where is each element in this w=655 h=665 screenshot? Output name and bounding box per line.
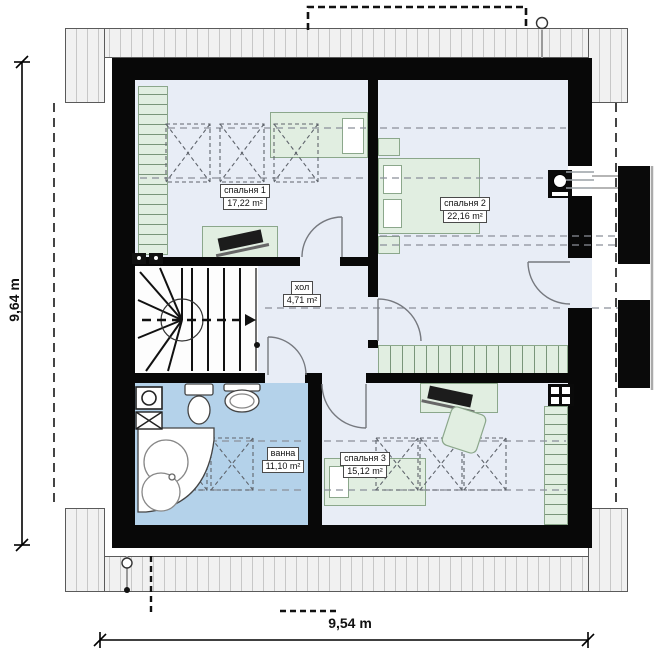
staircase-floor — [135, 266, 258, 373]
room-name: хол — [291, 281, 313, 295]
exterior-wall-top — [112, 58, 592, 80]
nightstand-bedroom2-top — [378, 138, 400, 156]
partition-corridor-bedroom3 — [366, 373, 592, 383]
room-area: 4,71 m² — [283, 294, 322, 308]
room-area: 15,12 m² — [343, 465, 387, 479]
floor-plan: спальня 1 17,22 m² спальня 2 22,16 m² хо… — [0, 0, 655, 665]
room-area: 17,22 m² — [223, 197, 267, 211]
balcony — [592, 166, 652, 390]
balcony-pier-bottom — [618, 300, 650, 388]
pillow-bedroom2-bottom — [383, 199, 402, 228]
desk-bedroom3 — [420, 383, 498, 413]
partition-bedroom1-bedroom2 — [368, 80, 378, 297]
room-label-hall: хол 4,71 m² — [272, 281, 332, 307]
roof-overhang-bottom-right — [588, 508, 628, 592]
roof-overhang-top-right — [588, 28, 628, 103]
room-label-bedroom1: спальня 1 17,22 m² — [205, 184, 285, 210]
pillow-bedroom1 — [342, 118, 364, 154]
room-area: 22,16 m² — [443, 210, 487, 224]
dimension-width-label: 9,54 m — [295, 615, 405, 631]
exterior-wall-right-lower — [568, 308, 592, 548]
room-name: ванна — [267, 447, 300, 461]
balcony-pier-top — [618, 166, 650, 264]
wardrobe-corridor — [378, 345, 568, 374]
roof-overhang-top-left — [65, 28, 105, 103]
room-name: спальня 3 — [340, 452, 390, 466]
pillow-bedroom2-top — [383, 165, 402, 194]
wardrobe-bedroom1 — [138, 86, 168, 255]
nightstand-bedroom2-bottom — [378, 236, 400, 254]
room-name: спальня 1 — [220, 184, 270, 198]
dimension-line-bottom — [94, 632, 594, 648]
partition-bedroom1-hall — [135, 257, 300, 266]
wardrobe-bedroom3 — [544, 406, 568, 525]
roof-overhang-bottom — [65, 556, 628, 592]
desk-bedroom1 — [202, 226, 278, 258]
room-label-bath: ванна 11,10 m² — [248, 447, 318, 473]
exterior-wall-left — [112, 58, 135, 548]
roof-overhang-top — [65, 28, 628, 58]
roof-vent-icon — [537, 18, 548, 29]
exterior-wall-right-mid — [568, 196, 592, 258]
room-name: спальня 2 — [440, 197, 490, 211]
room-area: 11,10 m² — [262, 460, 305, 474]
partition-stub-corridor — [368, 340, 378, 348]
dimension-height-label: 9,64 m — [6, 260, 22, 340]
exterior-wall-bottom — [112, 525, 592, 548]
balcony-door-threshold — [568, 258, 592, 308]
partition-hall-bath — [135, 373, 265, 383]
room-label-bedroom3: спальня 3 15,12 m² — [325, 452, 405, 478]
exterior-wall-right-upper — [568, 58, 592, 166]
window-right-wall — [566, 172, 594, 188]
partition-bedroom1-hall-stub — [340, 257, 368, 266]
room-label-bedroom2: спальня 2 22,16 m² — [425, 197, 505, 223]
roof-overhang-bottom-left — [65, 508, 105, 592]
